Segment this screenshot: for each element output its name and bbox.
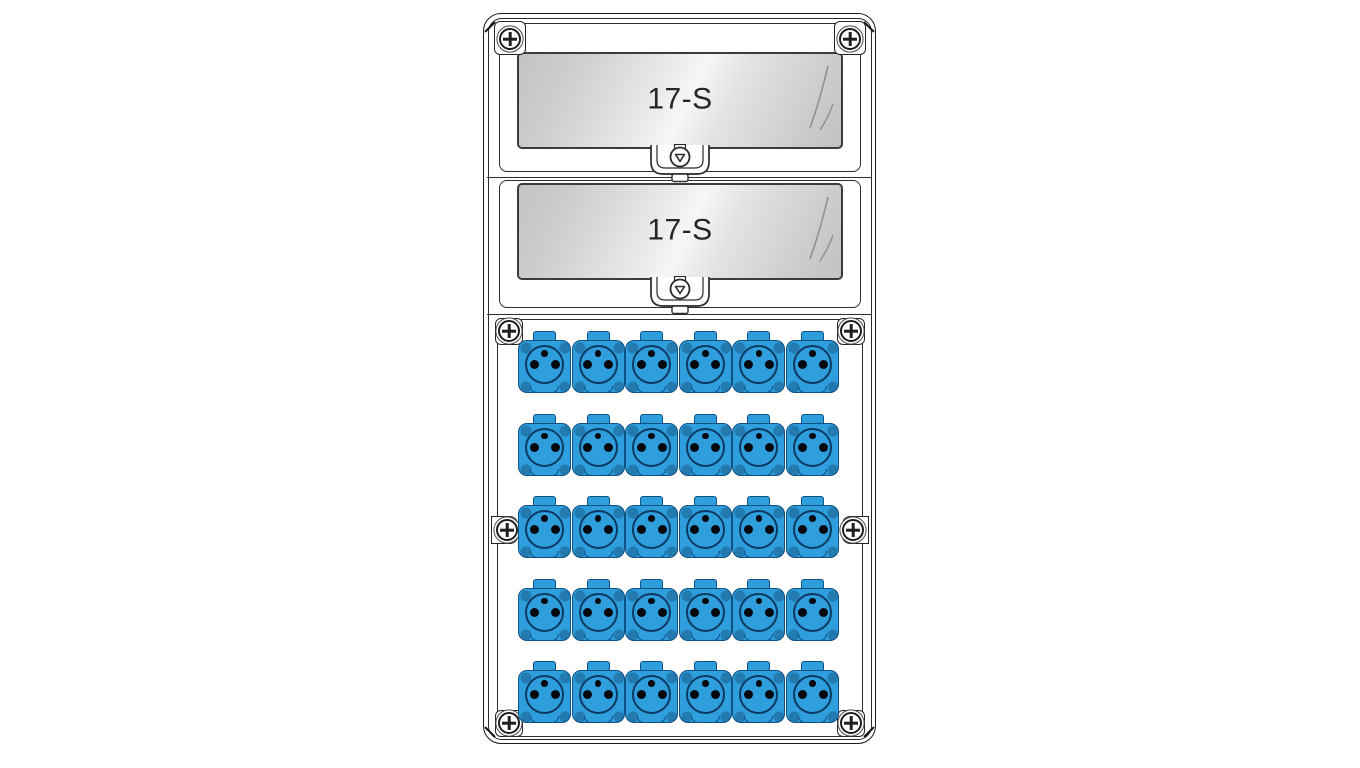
socket-flap (584, 551, 613, 558)
socket-flap (530, 716, 559, 723)
socket-hole-right (819, 608, 828, 617)
screw-icon (496, 519, 518, 541)
socket (518, 661, 571, 723)
socket-ground-pin (648, 350, 655, 357)
window-latch-icon (645, 276, 715, 318)
socket-flap (584, 716, 613, 723)
socket (679, 414, 732, 476)
socket-hole-left (798, 360, 807, 369)
socket-hole-right (551, 690, 560, 699)
socket (679, 331, 732, 393)
screw-icon (840, 712, 862, 734)
screw-icon (498, 320, 520, 342)
socket (732, 661, 785, 723)
socket-hole-left (690, 443, 699, 452)
socket-hole-left (637, 443, 646, 452)
socket-ground-pin (648, 515, 655, 522)
socket (679, 496, 732, 558)
socket-hole-right (819, 525, 828, 534)
socket-ground-pin (595, 515, 602, 522)
socket-ground-pin (809, 515, 816, 522)
socket (625, 661, 678, 723)
socket-hole-left (798, 525, 807, 534)
socket (786, 579, 839, 641)
socket-hole-right (819, 690, 828, 699)
socket-flap (584, 634, 613, 641)
socket-ground-pin (809, 433, 816, 440)
socket-hole-left (798, 443, 807, 452)
socket-ground-pin (541, 680, 548, 687)
distribution-board-diagram: 17-S 17-S (0, 0, 1360, 768)
socket-flap (798, 469, 827, 476)
socket-grid (518, 331, 842, 725)
socket-hole-right (551, 360, 560, 369)
socket-flap (744, 634, 773, 641)
socket (625, 414, 678, 476)
socket-hole-left (744, 608, 753, 617)
glass-reflection-icon (806, 191, 836, 273)
window-label-2: 17-S (519, 213, 841, 247)
socket-ground-pin (648, 433, 655, 440)
socket (625, 496, 678, 558)
breaker-window-1: 17-S (517, 52, 843, 149)
socket-flap (637, 551, 666, 558)
socket-ground-pin (648, 680, 655, 687)
socket-flap (691, 469, 720, 476)
socket-hole-left (744, 360, 753, 369)
socket-flap (637, 386, 666, 393)
socket-hole-right (658, 443, 667, 452)
socket-hole-left (637, 360, 646, 369)
socket (786, 496, 839, 558)
screw-icon (499, 28, 521, 50)
socket-flap (744, 551, 773, 558)
socket-flap (691, 716, 720, 723)
socket-ground-pin (756, 515, 763, 522)
socket-hole-left (583, 443, 592, 452)
socket (786, 414, 839, 476)
socket-hole-right (819, 360, 828, 369)
socket-flap (637, 469, 666, 476)
socket (625, 579, 678, 641)
socket-hole-right (658, 525, 667, 534)
socket-hole-right (765, 608, 774, 617)
socket (786, 661, 839, 723)
socket (572, 579, 625, 641)
socket-hole-right (819, 443, 828, 452)
socket-flap (798, 551, 827, 558)
socket-flap (530, 469, 559, 476)
socket-hole-left (530, 360, 539, 369)
socket-flap (637, 634, 666, 641)
socket (679, 579, 732, 641)
socket (732, 331, 785, 393)
socket-flap (691, 386, 720, 393)
socket-hole-left (583, 608, 592, 617)
socket-flap (691, 551, 720, 558)
screw-icon (839, 28, 861, 50)
socket (732, 579, 785, 641)
breaker-window-2: 17-S (517, 183, 843, 280)
socket-flap (798, 634, 827, 641)
socket-hole-left (744, 443, 753, 452)
socket (732, 414, 785, 476)
socket (572, 496, 625, 558)
screw-icon (840, 320, 862, 342)
socket (679, 661, 732, 723)
socket-ground-pin (541, 515, 548, 522)
socket-ground-pin (702, 598, 709, 605)
socket (518, 579, 571, 641)
socket-flap (744, 469, 773, 476)
socket-ground-pin (702, 680, 709, 687)
socket (732, 496, 785, 558)
socket-ground-pin (702, 433, 709, 440)
socket-ground-pin (756, 680, 763, 687)
socket-ground-pin (809, 350, 816, 357)
screw-icon (842, 519, 864, 541)
socket-hole-left (798, 608, 807, 617)
socket (572, 331, 625, 393)
socket-hole-right (551, 443, 560, 452)
socket-hole-right (711, 443, 720, 452)
socket-hole-left (530, 525, 539, 534)
socket-hole-right (658, 360, 667, 369)
socket-flap (744, 386, 773, 393)
socket-hole-right (658, 608, 667, 617)
socket (518, 331, 571, 393)
socket-flap (584, 386, 613, 393)
socket-flap (530, 386, 559, 393)
socket-ground-pin (756, 350, 763, 357)
socket-hole-right (604, 608, 613, 617)
socket-ground-pin (702, 515, 709, 522)
glass-reflection-icon (806, 60, 836, 142)
socket-hole-left (530, 608, 539, 617)
socket-ground-pin (541, 598, 548, 605)
socket-ground-pin (541, 350, 548, 357)
socket-hole-left (798, 690, 807, 699)
socket-hole-left (637, 608, 646, 617)
socket-ground-pin (809, 598, 816, 605)
socket-hole-left (530, 443, 539, 452)
socket-ground-pin (541, 433, 548, 440)
socket-hole-left (637, 525, 646, 534)
socket-flap (584, 469, 613, 476)
socket (518, 414, 571, 476)
socket-ground-pin (809, 680, 816, 687)
socket (625, 331, 678, 393)
socket (786, 331, 839, 393)
socket-flap (798, 716, 827, 723)
socket-hole-left (530, 690, 539, 699)
socket-hole-right (551, 608, 560, 617)
socket-ground-pin (702, 350, 709, 357)
socket-flap (637, 716, 666, 723)
socket-ground-pin (595, 350, 602, 357)
socket (572, 414, 625, 476)
socket-hole-right (765, 443, 774, 452)
window-label-1: 17-S (519, 82, 841, 116)
socket-hole-right (551, 525, 560, 534)
socket-flap (798, 386, 827, 393)
socket-flap (530, 634, 559, 641)
socket (518, 496, 571, 558)
socket-flap (530, 551, 559, 558)
screw-icon (498, 712, 520, 734)
socket-hole-right (604, 443, 613, 452)
socket-hole-right (765, 360, 774, 369)
socket-flap (691, 634, 720, 641)
socket (572, 661, 625, 723)
window-latch-icon (645, 144, 715, 186)
